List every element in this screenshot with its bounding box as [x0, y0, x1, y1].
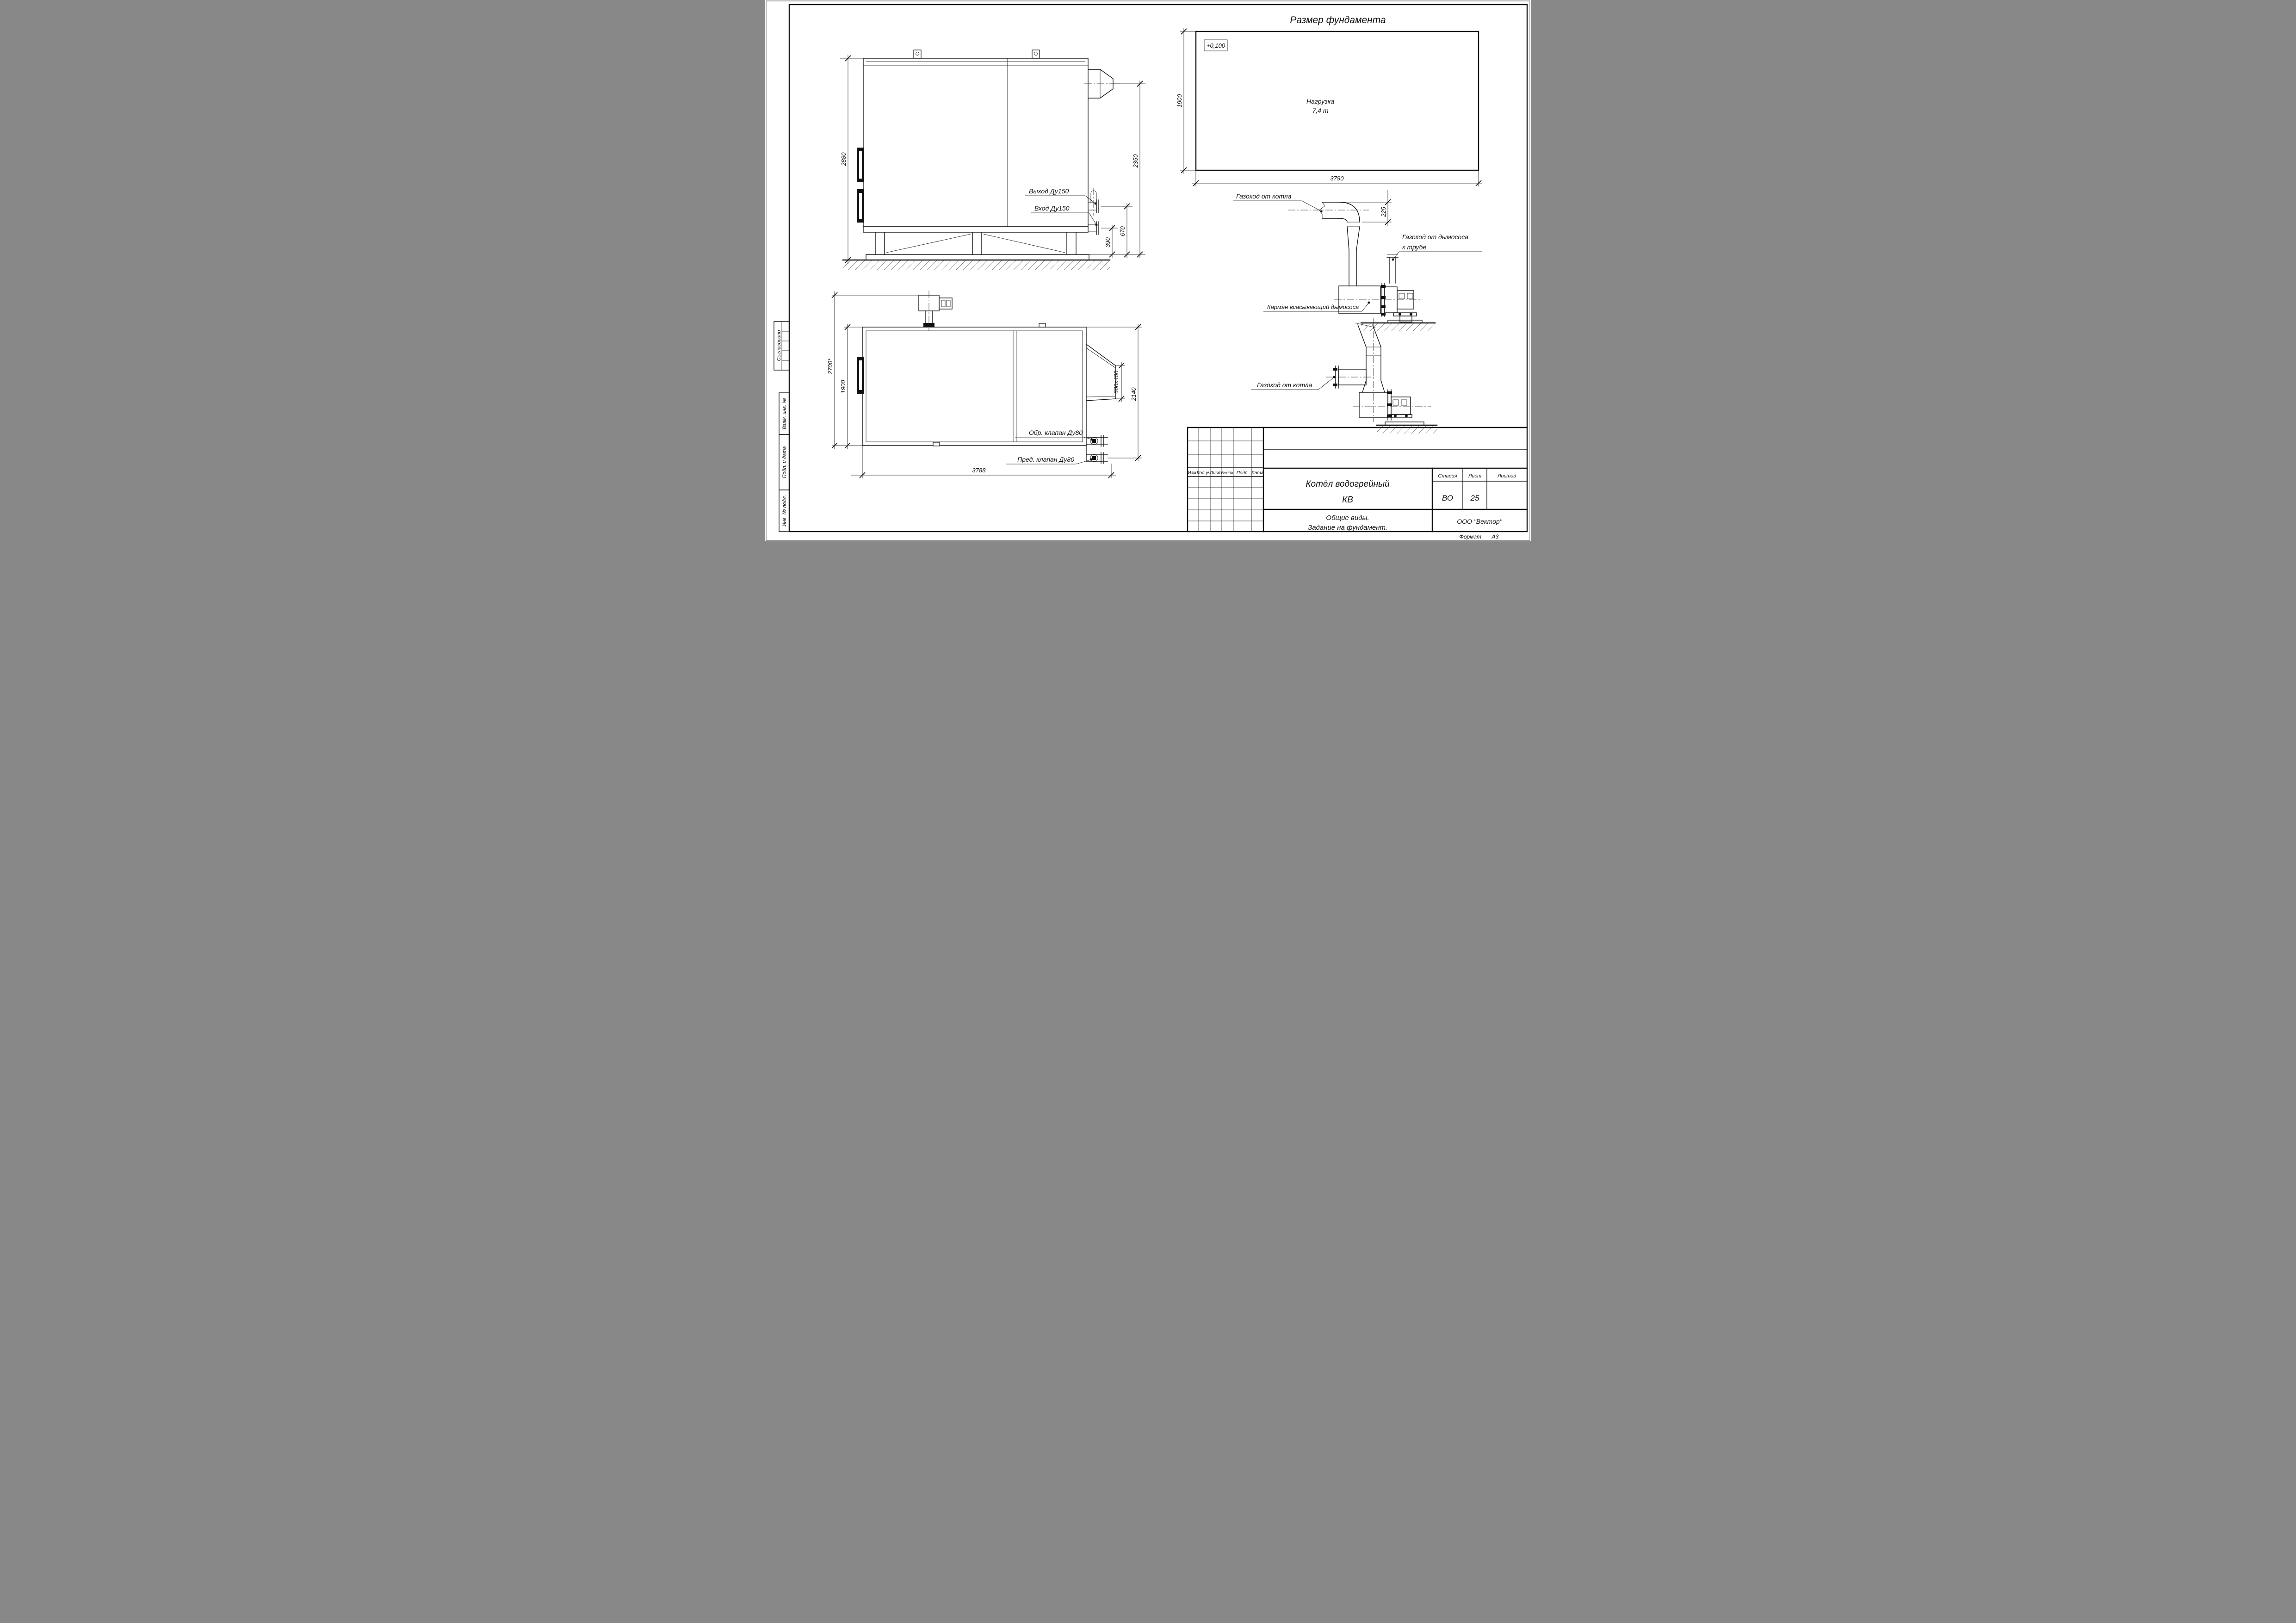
dim-duct-span: 2140 — [1130, 387, 1137, 402]
sheets-label: Листов — [1497, 473, 1516, 479]
flue-transition — [1086, 344, 1115, 401]
blower-assembly — [919, 291, 952, 331]
inlet-pipe — [1088, 222, 1118, 235]
top-view-dimensions: 2700* 1900 600x400 2140 3788 — [827, 291, 1142, 478]
stamp-inv-orig: Инв. № подл. — [782, 495, 787, 527]
sheet-label: Лист — [1468, 473, 1481, 479]
sheet-frame — [766, 1, 1530, 540]
top-view-labels: Обр. клапан Ду80 Пред. клапан Ду80 — [1006, 429, 1093, 464]
label-outlet-du150: Выход Ду150 — [1029, 187, 1069, 195]
col-ndok: №док. — [1221, 471, 1234, 476]
outlet-pipe — [1088, 188, 1133, 216]
format-label: Формат — [1459, 533, 1481, 540]
foundation-dimensions: 1900 3790 — [1176, 28, 1482, 186]
dim-height-total: 2880 — [840, 152, 847, 167]
check-valve-stub — [1086, 435, 1108, 446]
side-view-labels: Выход Ду150 Вход Ду150 — [1025, 187, 1098, 226]
foundation-title: Размер фундамента — [1290, 15, 1386, 25]
title-block: Изм. Кол.уч. Лист №док. Подп. Дата Котёл… — [1188, 427, 1527, 540]
lifting-lug-icon — [914, 50, 1040, 58]
label-duct1-to-stack-1: Газоход от дымососа — [1402, 233, 1468, 241]
col-list: Лист — [1209, 471, 1222, 476]
ground-hatch — [843, 260, 1110, 270]
stage-value: ВО — [1442, 494, 1453, 502]
label-duct1-to-stack-2: к трубе — [1402, 243, 1427, 251]
drawing-sheet: Согласовано Взам. инв. № Подп. и дата Ин… — [765, 0, 1531, 541]
dim-width-total: 2700* — [827, 358, 834, 375]
col-data: Дата — [1251, 471, 1264, 476]
smoke-exhauster-2 — [1353, 390, 1437, 434]
dim-length-total: 3788 — [972, 467, 986, 474]
dim-duct-size: 600x400 — [1113, 370, 1120, 394]
dim-foundation-width: 1900 — [1176, 94, 1183, 108]
sheet-value: 25 — [1470, 494, 1479, 502]
col-izm: Изм. — [1188, 471, 1197, 476]
boiler-side-view: 2880 2350 670 390 Выход Ду150 Вход Ду150 — [840, 50, 1145, 270]
foundation-plan: Размер фундамента +0,100 Нагрузка 7,4 т … — [1176, 15, 1482, 186]
revision-table: Изм. Кол.уч. Лист №док. Подп. Дата — [1188, 427, 1264, 532]
stamp-approved: Согласовано — [776, 330, 782, 361]
foundation-load-line2: 7,4 т — [1312, 107, 1328, 114]
label-inlet-du150: Вход Ду150 — [1034, 204, 1070, 212]
safety-valve-stub — [1086, 446, 1108, 464]
label-safety-valve: Пред. клапан Ду80 — [1017, 456, 1074, 463]
subtitle-line2: Задание на фундамент. — [1308, 524, 1387, 532]
label-duct2-from-boiler: Газоход от котла — [1257, 381, 1312, 389]
dim-inlet-height: 390 — [1104, 237, 1111, 247]
dim-chimney-height: 2350 — [1132, 154, 1139, 168]
gas-duct-view-2: Газоход от котла — [1251, 318, 1437, 434]
format-value: А3 — [1491, 533, 1499, 540]
label-duct1-from-boiler: Газоход от котла — [1236, 192, 1292, 200]
support-frame — [863, 227, 1089, 260]
left-margin-stamps: Согласовано Взам. инв. № Подп. и дата Ин… — [774, 322, 789, 532]
dim-outlet-height: 670 — [1119, 226, 1126, 236]
doc-title-line1: Котёл водогрейный — [1306, 479, 1390, 489]
subtitle-line1: Общие виды. — [1326, 514, 1369, 522]
stamp-replace-inv: Взам. инв. № — [782, 398, 787, 429]
foundation-load-line1: Нагрузка — [1306, 98, 1334, 105]
label-duct1-pocket: Карман всасывающий дымососа — [1267, 304, 1359, 310]
gas-duct-view-1: Газоход от котла 225 — [1233, 190, 1482, 331]
col-podp: Подп. — [1237, 471, 1249, 476]
label-check-valve: Обр. клапан Ду80 — [1029, 429, 1083, 436]
dim-width-boiler: 1900 — [840, 380, 847, 394]
stamp-sign-date: Подп. и дата — [782, 446, 787, 478]
foundation-elevation: +0,100 — [1207, 42, 1225, 49]
dim-duct1-offset: 225 — [1380, 206, 1387, 217]
boiler-top-view: 2700* 1900 600x400 2140 3788 Обр. клапан… — [827, 291, 1142, 478]
company-name: ООО "Вектор" — [1457, 518, 1502, 525]
stage-label: Стадия — [1438, 473, 1457, 479]
dim-foundation-length: 3790 — [1331, 175, 1344, 182]
doc-title-line2: КВ — [1342, 495, 1353, 505]
